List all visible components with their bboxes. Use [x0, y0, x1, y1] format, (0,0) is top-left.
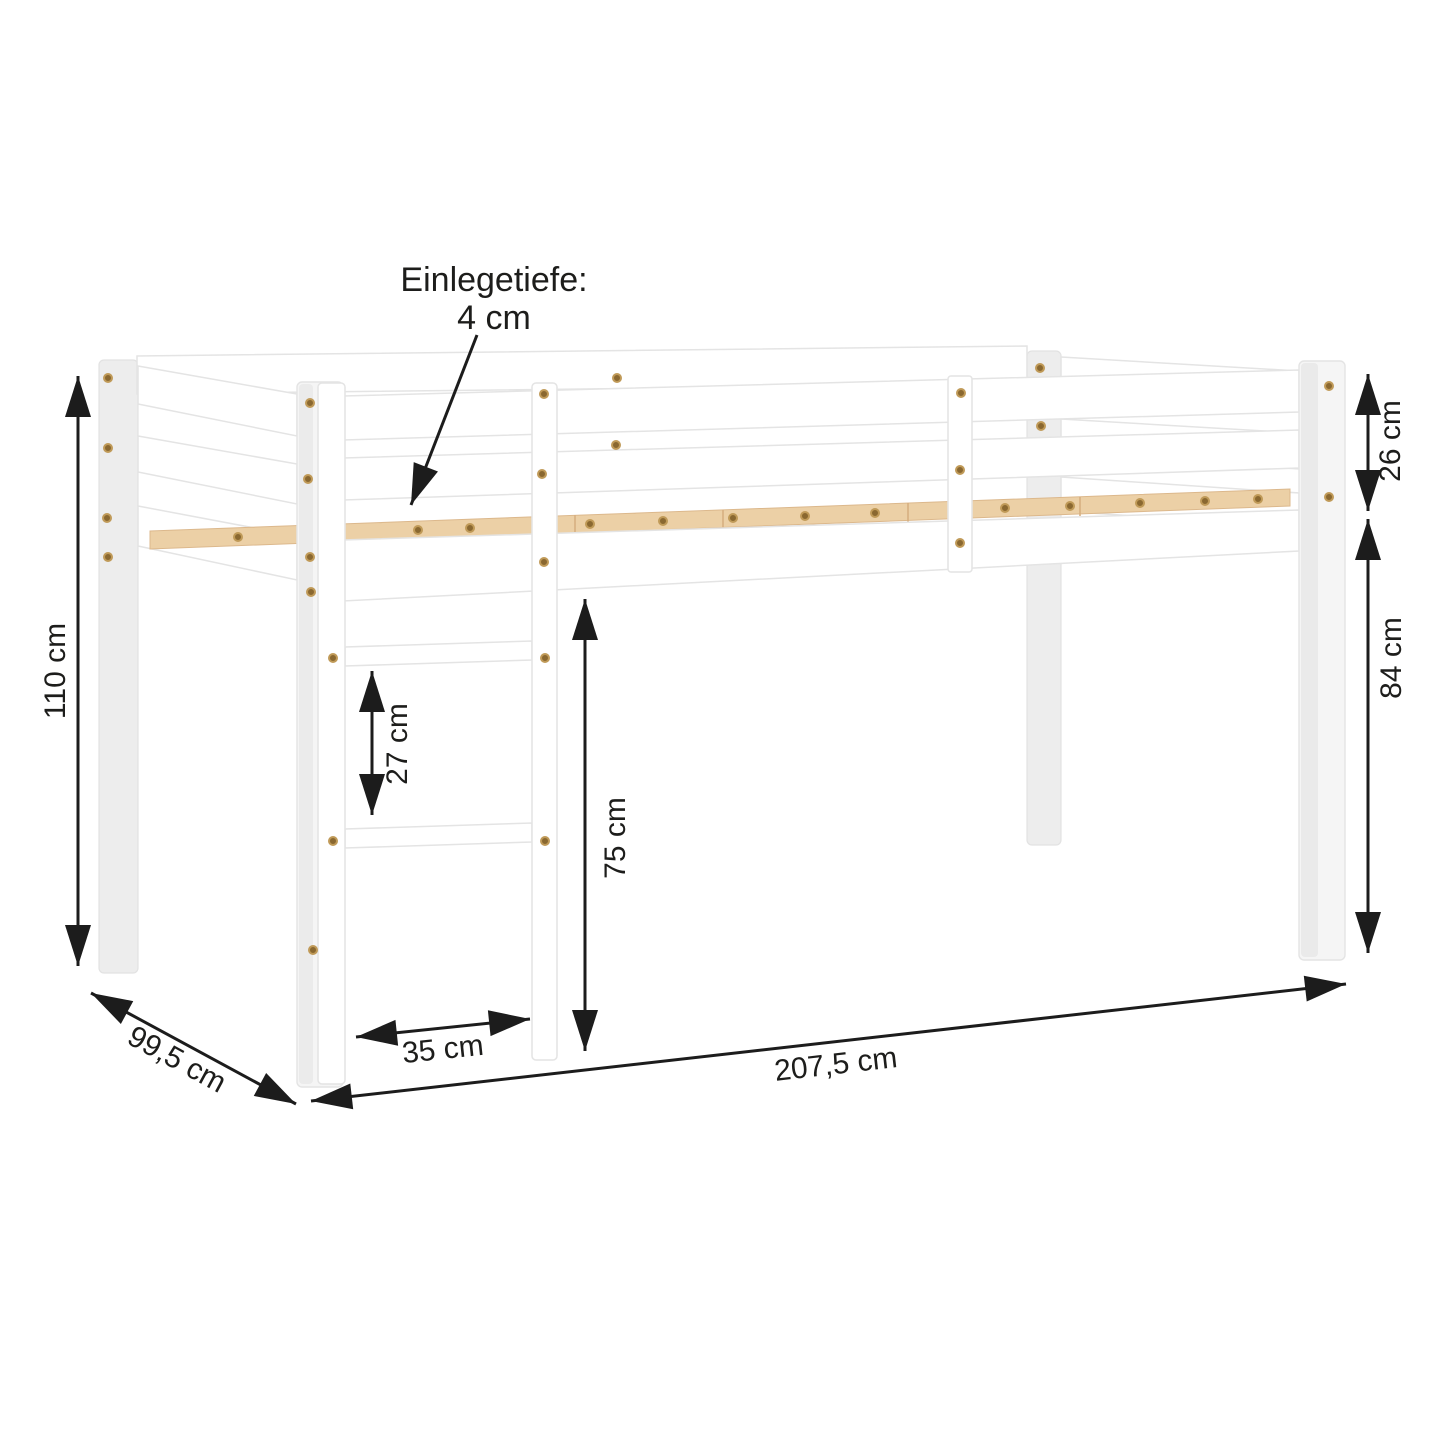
loft-bed-diagram-canvas: Einlegetiefe: 4 cm 110 cm 99,5 cm 26 cm …	[0, 0, 1445, 1445]
dim-label-total-height: 110 cm	[39, 623, 72, 719]
dim-total-height: 110 cm	[39, 376, 78, 966]
annotation-insert-depth-line2: 4 cm	[457, 299, 531, 337]
dim-rung-spacing: 27 cm	[372, 671, 414, 815]
bed-rail-left-middle	[138, 436, 297, 504]
annotation-insert-depth-line1: Einlegetiefe:	[400, 261, 587, 299]
bed-post-back-left	[99, 360, 138, 973]
loft-bed-illustration	[99, 346, 1345, 1087]
dim-leg-height: 84 cm	[1368, 519, 1408, 953]
dim-under-bed-clearance: 75 cm	[585, 599, 632, 1051]
dim-ladder-width: 35 cm	[356, 1019, 530, 1070]
dim-label-guard-rail-height: 26 cm	[1374, 400, 1407, 482]
ladder-rung	[345, 823, 532, 848]
dim-label-leg-height: 84 cm	[1375, 617, 1408, 699]
dim-depth: 99,5 cm	[91, 993, 296, 1104]
ladder-stile-left	[318, 383, 345, 1084]
dim-label-rung-spacing: 27 cm	[381, 703, 414, 785]
ladder-stile-right	[532, 383, 557, 1060]
dim-guard-rail-height: 26 cm	[1368, 374, 1407, 511]
dimension-diagram: Einlegetiefe: 4 cm 110 cm 99,5 cm 26 cm …	[0, 0, 1445, 1445]
dim-label-ladder-width: 35 cm	[400, 1029, 485, 1070]
bed-post-front-right	[1299, 361, 1345, 960]
dim-label-under-bed-clearance: 75 cm	[599, 797, 632, 879]
ladder-rung	[345, 641, 532, 666]
